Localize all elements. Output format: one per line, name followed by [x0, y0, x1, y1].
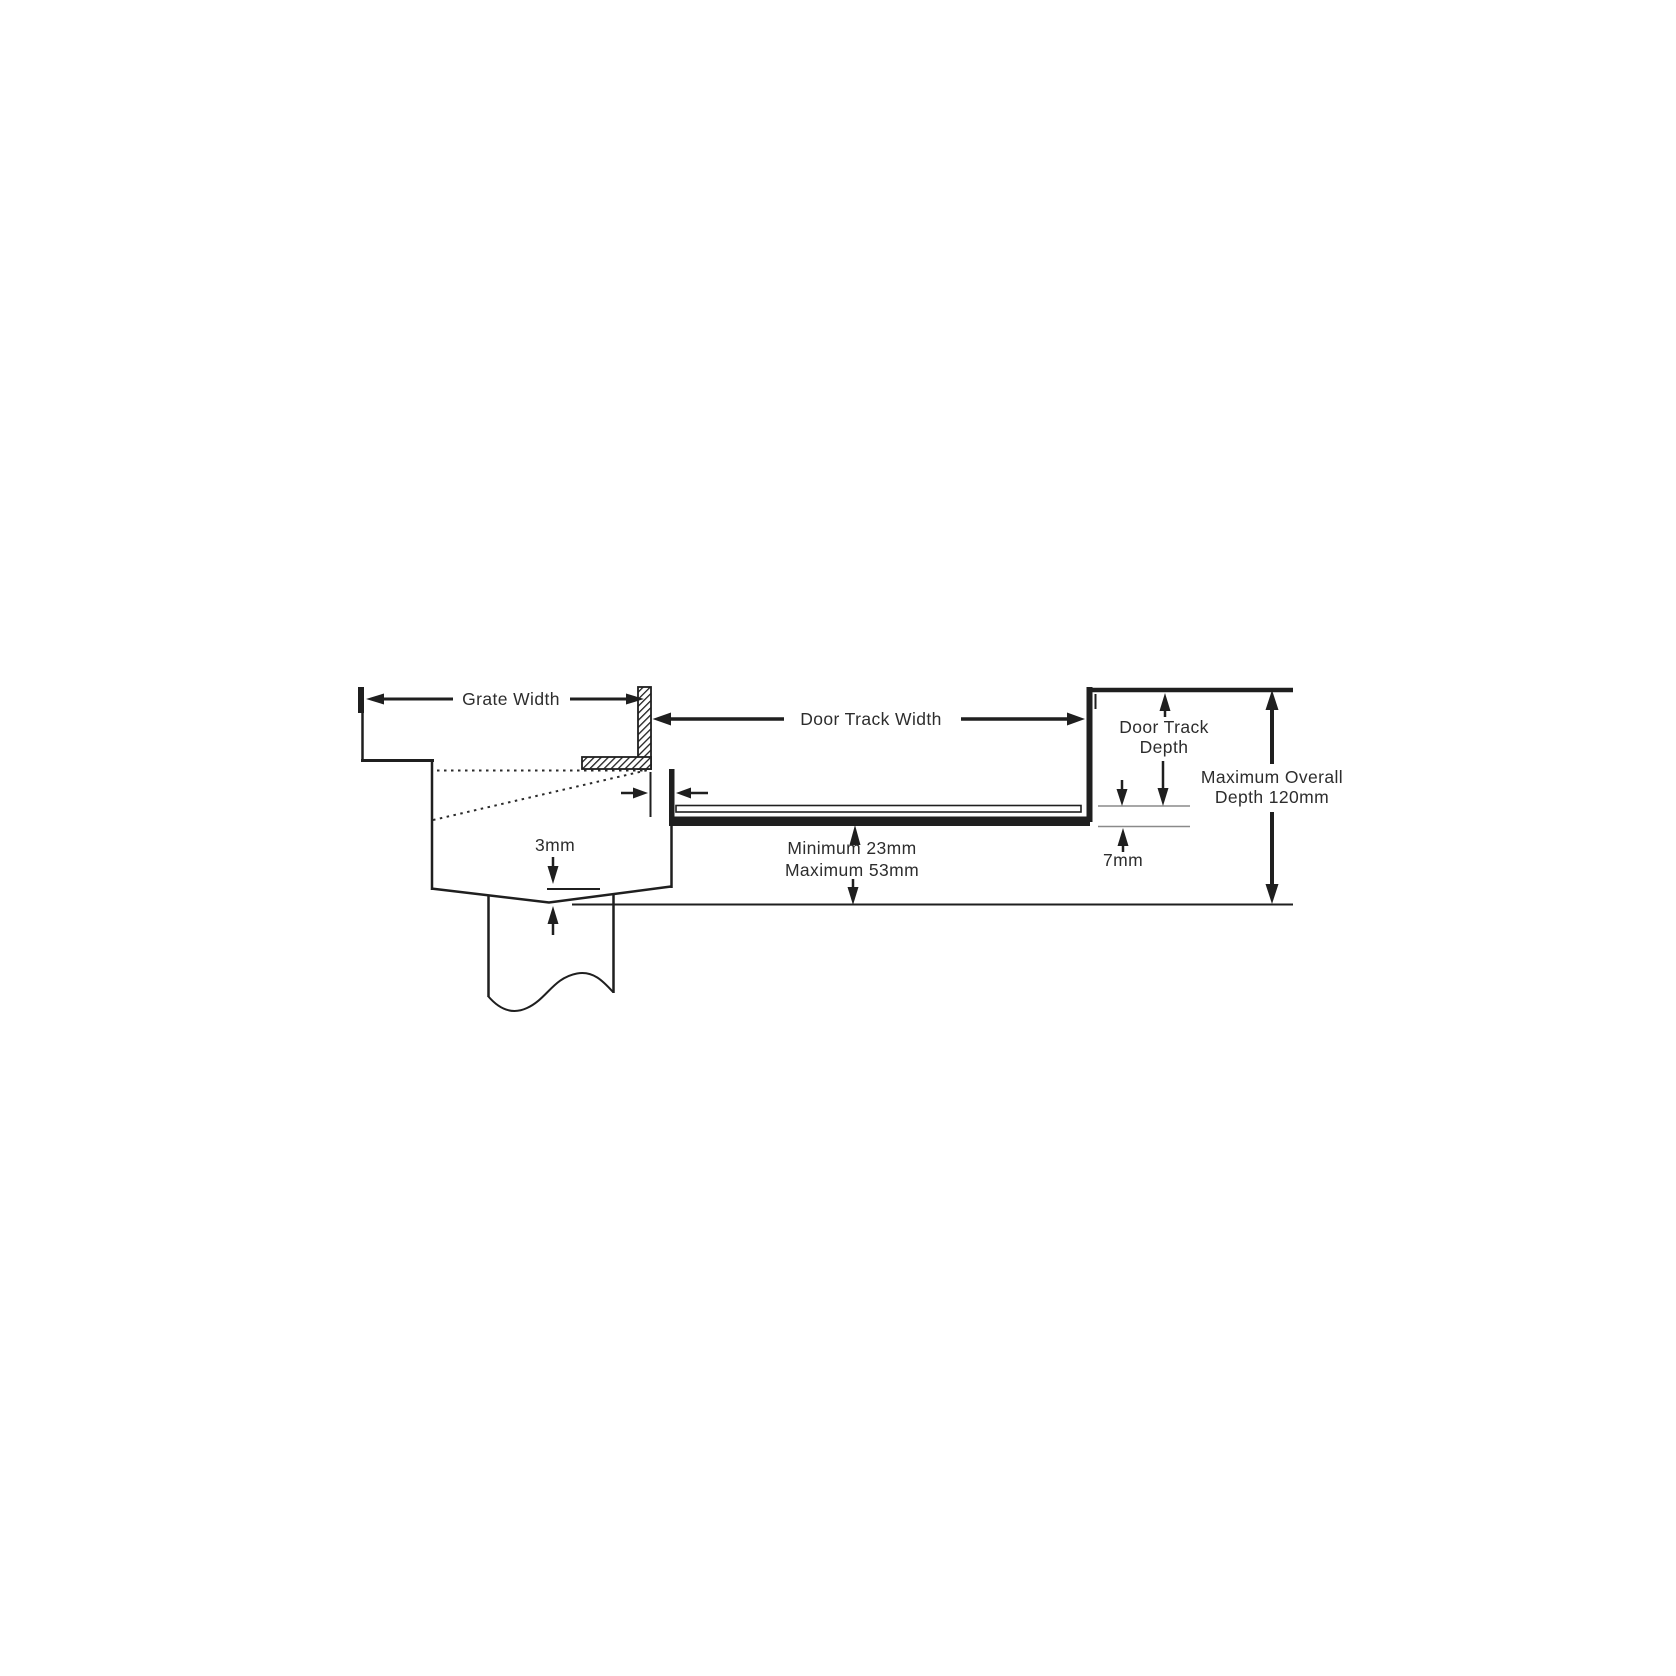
arrowhead-left-icon: [366, 694, 384, 705]
hidden-edge-sloped: [433, 770, 648, 820]
door-track-depth-label-line1: Door Track: [1119, 717, 1209, 737]
arrowhead-up-icon: [1118, 828, 1129, 846]
arrowhead-right-icon: [633, 788, 648, 799]
grate-channel-profile: [358, 687, 672, 1011]
right-wall: [1087, 687, 1093, 822]
arrowhead-right-icon: [1067, 713, 1085, 726]
arrowhead-up-icon: [548, 906, 559, 924]
dim-track-height-7mm: 7mm: [1103, 780, 1143, 870]
arrowhead-left-icon: [676, 788, 691, 799]
door-track-width-label: Door Track Width: [800, 709, 942, 729]
hidden-grate-edges: [433, 770, 648, 820]
grate-width-label: Grate Width: [462, 689, 560, 709]
grate-width-left-tick: [358, 687, 364, 713]
dim-grate-width: Grate Width: [366, 689, 644, 709]
arrowhead-up-icon: [1160, 693, 1171, 711]
arrowhead-down-icon: [1117, 789, 1128, 806]
pipe-break-wave: [488, 973, 613, 1011]
max-overall-depth-label-line1: Maximum Overall: [1201, 767, 1343, 787]
door-track-profile: [669, 769, 1090, 826]
arrowhead-down-icon: [848, 887, 859, 905]
page-canvas: Grate Width Door Track Width Door Track …: [0, 0, 1676, 1676]
dim-max-overall-depth: Maximum Overall Depth 120mm: [1201, 690, 1343, 904]
invert-fall-label: 3mm: [535, 835, 575, 855]
track-body-band: [670, 817, 1090, 827]
dim-door-track-depth: Door Track Depth: [1119, 693, 1209, 806]
dim-invert-fall-3mm: 3mm: [535, 835, 600, 935]
arrowhead-down-icon: [1266, 884, 1279, 904]
track-height-label: 7mm: [1103, 850, 1143, 870]
dim-door-track-width: Door Track Width: [653, 709, 1086, 729]
door-track-depth-label-line2: Depth: [1140, 737, 1189, 757]
section-diagram: Grate Width Door Track Width Door Track …: [0, 0, 1676, 1676]
arrowhead-down-icon: [1158, 788, 1169, 806]
track-top-lip: [676, 806, 1081, 813]
max-overall-depth-label-line2: Depth 120mm: [1215, 787, 1329, 807]
clearance-max-label: Maximum 53mm: [785, 860, 919, 880]
dim-clearance-under-track: Minimum 23mm Maximum 53mm: [785, 825, 919, 905]
frame-horizontal-leg: [582, 757, 651, 769]
arrowhead-left-icon: [653, 713, 672, 726]
clearance-min-label: Minimum 23mm: [787, 838, 916, 858]
arrowhead-down-icon: [548, 866, 559, 884]
